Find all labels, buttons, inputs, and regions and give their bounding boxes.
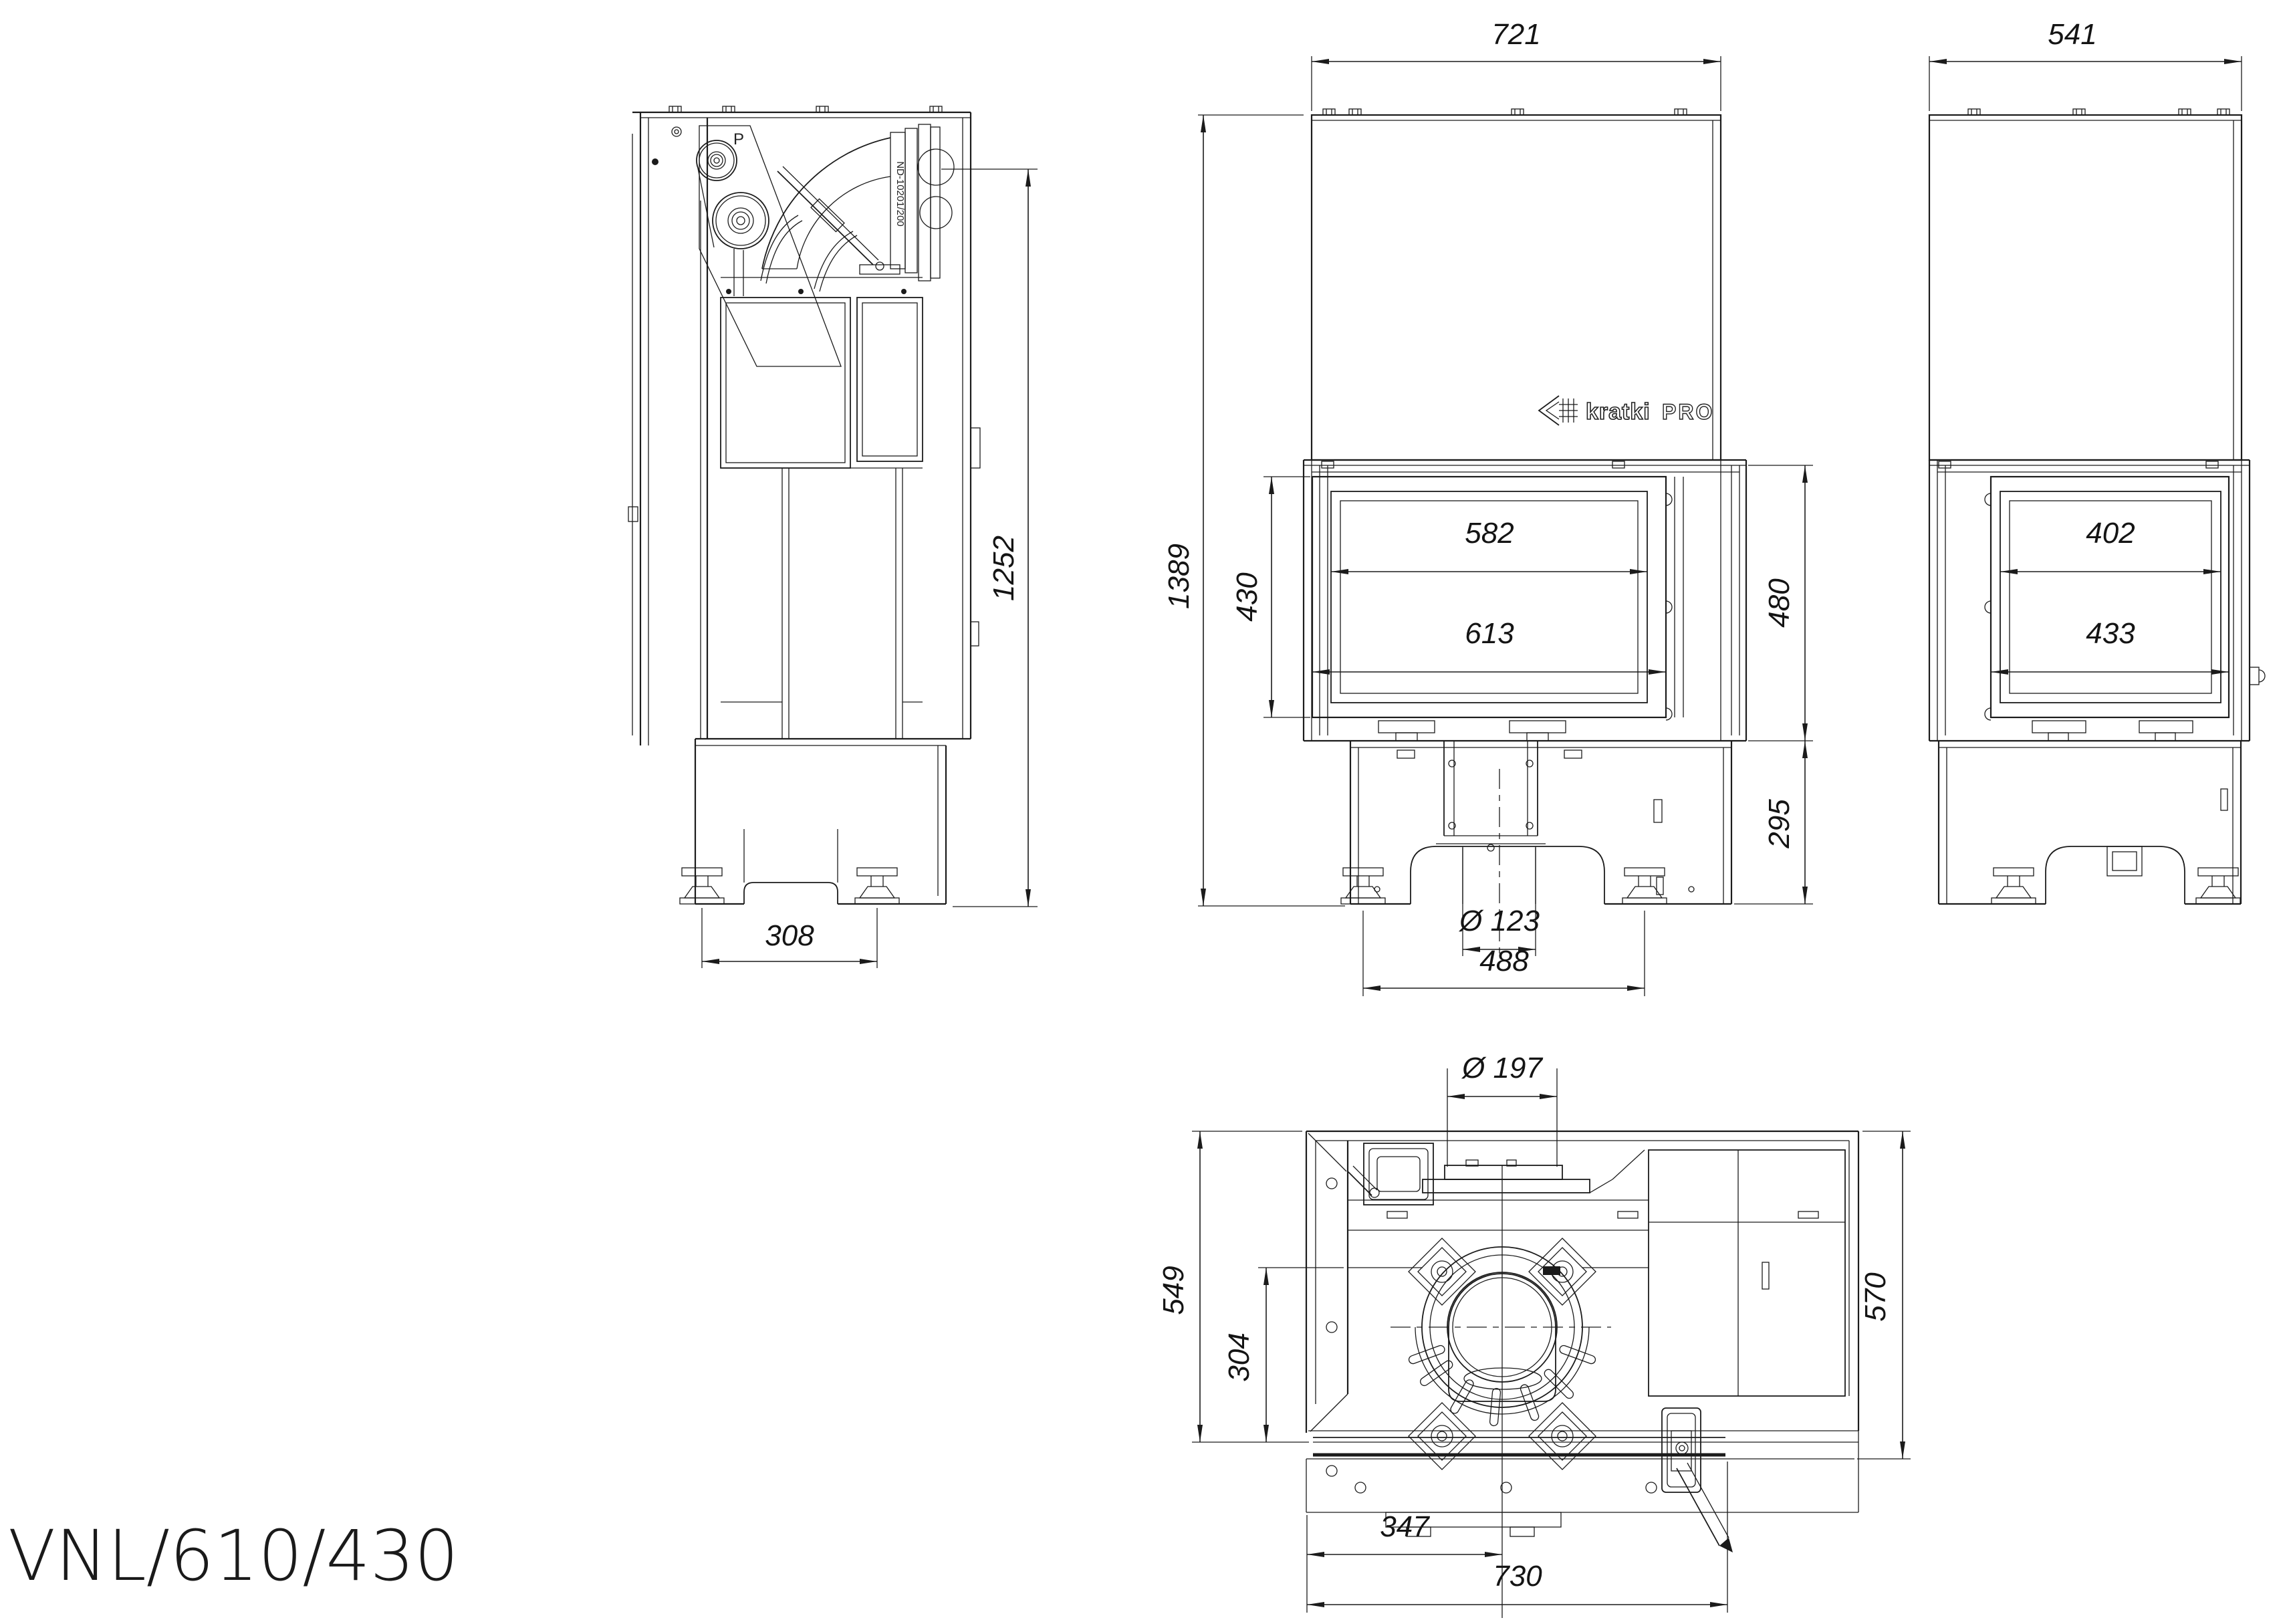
turnbuckle	[811, 199, 844, 231]
adjustable-foot	[855, 868, 899, 904]
lever-arm	[1677, 1468, 1719, 1546]
right-dim-glass-width: 402	[2000, 517, 2221, 572]
top-outline	[1306, 1131, 1858, 1476]
right-view: 541 402 433	[1929, 18, 2265, 904]
hinge-icon	[1666, 708, 1672, 720]
clip-icon	[1675, 109, 1687, 115]
adjustable-foot	[680, 868, 724, 904]
front-dim-door-width: 613	[1312, 617, 1666, 672]
pivot-icon	[1370, 1188, 1379, 1197]
bottom-right-mechanism	[1662, 1408, 1733, 1552]
duct-outer-curve	[762, 138, 890, 269]
clip-icon	[1612, 461, 1624, 468]
top-dim-overall-width: 730	[1307, 1462, 1727, 1613]
right-hood	[1929, 109, 2242, 460]
top-dim-overall-depth: 570	[1857, 1131, 1911, 1459]
dim-label: 295	[1763, 799, 1796, 849]
dim-label: 402	[2086, 517, 2135, 550]
clip-icon	[1512, 109, 1524, 115]
latch-plate	[2139, 721, 2193, 733]
clip-icon	[1397, 750, 1415, 758]
dim-label: 570	[1859, 1272, 1892, 1322]
vent-slot	[1618, 1211, 1638, 1218]
clip-icon	[1349, 109, 1361, 115]
front-view: kratki PRO	[1163, 18, 1813, 996]
collar-flange	[1423, 1179, 1590, 1193]
base-arch-cutout	[1411, 846, 1604, 904]
duct-flange	[905, 128, 917, 273]
bolt-flange-diamond	[1409, 1238, 1475, 1305]
latch-arm	[1348, 1171, 1372, 1195]
front-dim-flue-diameter: Ø 123	[1458, 848, 1540, 956]
mount-plate	[860, 265, 900, 274]
dim-label: 549	[1157, 1266, 1190, 1314]
adjustable-foot	[2196, 868, 2240, 904]
roller-plate	[919, 124, 931, 281]
adjustable-foot	[1992, 868, 2036, 904]
clip-icon	[2206, 461, 2218, 468]
dim-label: 308	[765, 919, 814, 952]
brand-series: PRO	[1662, 400, 1714, 424]
dim-label: 582	[1465, 517, 1514, 550]
hose-line	[761, 215, 798, 281]
hose-line	[766, 221, 802, 283]
mitre-joint	[1308, 1133, 1346, 1171]
bolt-icon	[726, 289, 731, 294]
hinge-icon	[1985, 708, 1991, 720]
kratki-arrow-grid-icon	[1539, 396, 1578, 425]
dim-label: 304	[1223, 1332, 1255, 1381]
top-left-mechanism	[1348, 1143, 1433, 1205]
bolt-icon	[672, 127, 681, 136]
front-frame	[1304, 460, 1746, 741]
latch-plate	[1378, 721, 1435, 733]
vent-slot	[1387, 1211, 1407, 1218]
front-dim-base-height: 295	[1734, 741, 1813, 904]
wall-hook	[628, 507, 638, 521]
dim-label: 1252	[987, 536, 1020, 601]
front-dim-hood-width: 721	[1312, 18, 1721, 111]
label-mark	[1543, 1266, 1560, 1275]
bolt-icon	[1326, 1322, 1337, 1332]
dim-label: 480	[1763, 578, 1796, 628]
bolt-icon	[1326, 1178, 1337, 1189]
side-base	[680, 739, 971, 904]
vent-slot	[2221, 789, 2227, 810]
top-right-module	[1649, 1150, 1845, 1396]
brand-logo: kratki PRO	[1539, 396, 1714, 425]
handle-knob	[2250, 667, 2259, 685]
front-dim-firebox-height: 480	[1748, 465, 1813, 741]
vent-slot	[1654, 800, 1662, 822]
hinge-icon	[1666, 601, 1672, 613]
bolt-icon	[1646, 1482, 1657, 1493]
dim-label: Ø 197	[1461, 1052, 1543, 1084]
handle-knob	[2259, 670, 2265, 682]
dim-label: 613	[1465, 617, 1514, 650]
pulley-icon	[697, 140, 737, 181]
flue-collar	[1391, 1150, 1645, 1618]
clip-icon	[2073, 109, 2085, 115]
side-dim-feet: 308	[702, 908, 877, 968]
latch-plate	[2032, 721, 2086, 733]
hinge-icon	[1666, 493, 1672, 505]
side-panels	[721, 277, 923, 739]
adjustable-foot	[1341, 868, 1385, 904]
bolt-icon	[1355, 1482, 1366, 1493]
clip-icon	[669, 106, 681, 112]
door-opening	[1312, 477, 1666, 717]
hinge-icon	[1985, 493, 1991, 505]
top-dim-depth-to-glass: 549	[1157, 1131, 1309, 1442]
vent-slot	[1762, 1262, 1769, 1289]
bolt-flange-diamond	[1409, 1403, 1475, 1470]
top-dim-flue-offset: 347	[1307, 1510, 1502, 1613]
right-dim-hood-width: 541	[1929, 18, 2242, 111]
bolt-icon	[876, 262, 884, 270]
clip-icon	[1564, 750, 1582, 758]
front-hood: kratki PRO	[1312, 109, 1721, 460]
bolt-flange-diamond	[1529, 1238, 1596, 1305]
drawing-sheet: P ND-10201/200	[0, 0, 2291, 1624]
top-band	[1348, 1200, 1818, 1268]
side-dim-height: 1252	[941, 169, 1038, 907]
bolt-icon	[901, 289, 907, 294]
front-dim-glass-width: 582	[1331, 517, 1647, 572]
clip-icon	[816, 106, 828, 112]
adjustable-foot	[1622, 868, 1667, 904]
pulley-icon	[713, 193, 769, 249]
top-view: Ø 197 549 304 570 347 730	[1157, 1052, 1911, 1618]
support-column	[1436, 741, 1546, 851]
pivot-icon	[1676, 1442, 1688, 1454]
base-arch-cutout	[2046, 846, 2185, 904]
bolt-icon	[1326, 1466, 1337, 1476]
clip-icon	[2217, 109, 2229, 115]
front-dim-glass-height: 430	[1231, 477, 1310, 717]
bolt-flange-diamond	[1529, 1403, 1596, 1470]
dim-label: 1389	[1163, 544, 1195, 609]
panel	[721, 298, 850, 468]
dim-label: 721	[1491, 18, 1540, 51]
duct-code-label: ND-10201/200	[894, 161, 906, 227]
floor-opening	[1464, 1368, 1542, 1389]
brand-name: kratki	[1586, 399, 1651, 425]
dim-label: 347	[1380, 1510, 1430, 1543]
top-dim-collar-diameter: Ø 197	[1447, 1052, 1557, 1167]
clip-icon	[2179, 109, 2191, 115]
side-view: P ND-10201/200	[628, 106, 1038, 968]
lift-mechanism: P	[697, 124, 954, 366]
roller-icon	[918, 149, 954, 185]
side-bracket	[971, 622, 979, 646]
roller-icon	[920, 197, 952, 229]
pulley-mark-label: P	[733, 130, 744, 148]
dim-label: 433	[2086, 617, 2135, 650]
model-title: VNL/610/430	[8, 1515, 459, 1597]
base-arch-cutout	[744, 883, 838, 904]
clip-icon	[1968, 109, 1980, 115]
flue-duct: ND-10201/200	[761, 128, 917, 292]
bolt-icon	[1689, 887, 1694, 892]
dim-label: 541	[2048, 18, 2096, 51]
bolt-icon	[652, 158, 658, 165]
right-frame	[1929, 460, 2265, 741]
dim-label: Ø 123	[1458, 905, 1540, 937]
side-body-outline	[628, 106, 980, 745]
right-base	[1929, 741, 2250, 904]
foot-tab	[1510, 1527, 1534, 1536]
right-dim-door-width: 433	[1991, 617, 2229, 672]
bolt-icon	[1487, 844, 1494, 851]
side-door-opening	[1991, 477, 2229, 717]
bolt-icon	[798, 289, 804, 294]
clip-icon	[1939, 461, 1951, 468]
latch-plate	[1510, 721, 1566, 733]
clip-icon	[1323, 109, 1335, 115]
collar-plate	[1445, 1165, 1562, 1179]
dim-label: 430	[1231, 572, 1263, 622]
dim-label: 488	[1479, 945, 1529, 977]
vent-slot	[1798, 1211, 1818, 1218]
panel	[857, 298, 923, 461]
clip-icon	[930, 106, 942, 112]
clip-icon	[723, 106, 735, 112]
hinge-icon	[1985, 601, 1991, 613]
tie-rod	[777, 171, 873, 265]
technical-drawing: P ND-10201/200	[0, 0, 2291, 1624]
side-bracket	[971, 428, 980, 468]
dim-label: 730	[1493, 1560, 1542, 1593]
front-dim-overall-height: 1389	[1163, 115, 1345, 906]
lever-tip	[1719, 1538, 1733, 1552]
